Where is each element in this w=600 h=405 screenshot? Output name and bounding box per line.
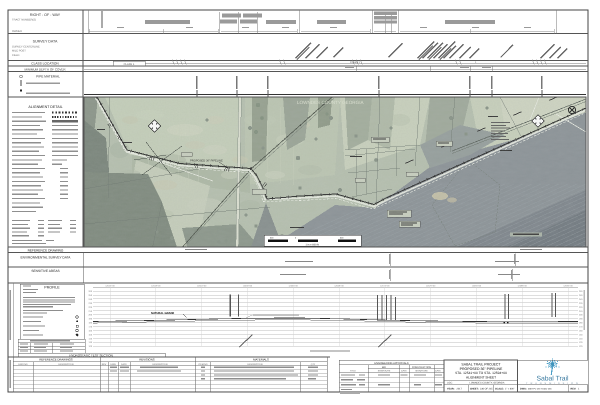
svg-text:DESCRIPTION: DESCRIPTION (59, 363, 74, 366)
svg-text:T R A N S M I S S I O N: T R A N S M I S S I O N (526, 382, 579, 385)
svg-text:0007-PL-DG-70181-236: 0007-PL-DG-70181-236 (528, 387, 552, 390)
svg-text:TITLE: TITLE (350, 370, 356, 373)
svg-text:REVISIONS: REVISIONS (139, 358, 154, 362)
svg-text:PIPE MATERIAL: PIPE MATERIAL (36, 75, 60, 79)
svg-text:RIGHT - OF - WAY: RIGHT - OF - WAY (30, 13, 61, 17)
svg-text:12578+00: 12578+00 (426, 284, 436, 287)
svg-text:DWN: DWN (110, 363, 116, 366)
svg-text:FIELD: FIELD (12, 54, 19, 57)
svg-text:REV:: REV: (571, 387, 577, 390)
svg-text:ALIGNMENT SHEET: ALIGNMENT SHEET (466, 375, 496, 379)
svg-text:MILE POST: MILE POST (12, 50, 26, 53)
svg-text:1" = 600': 1" = 600' (505, 387, 515, 390)
svg-text:TRACT NUMBER(S): TRACT NUMBER(S) (12, 19, 36, 22)
svg-text:MATERIALS: MATERIALS (253, 358, 269, 362)
svg-text:DATE: DATE (121, 363, 127, 366)
svg-text:REV: REV (102, 363, 107, 366)
svg-text:CLASS 1: CLASS 1 (124, 63, 135, 66)
svg-text:DWG:: DWG: (520, 387, 527, 390)
svg-text:12593+00: 12593+00 (563, 284, 573, 287)
svg-text:12563+00: 12563+00 (289, 284, 299, 287)
svg-text:NATURAL GRADE: NATURAL GRADE (151, 312, 174, 315)
svg-text:2017: 2017 (457, 387, 463, 390)
svg-text:DATE: DATE (401, 370, 407, 373)
svg-text:CLASS 1: CLASS 1 (350, 61, 361, 64)
svg-text:12543+00: 12543+00 (105, 284, 115, 287)
svg-text:236 OF 245: 236 OF 245 (480, 387, 493, 390)
svg-text:REFERENCE DRAWING: REFERENCE DRAWING (28, 248, 64, 252)
svg-text:DWG NO: DWG NO (18, 363, 28, 366)
svg-text:12583+00: 12583+00 (472, 284, 482, 287)
svg-text:ENVIRONMENTAL SURVEY DATA: ENVIRONMENTAL SURVEY DATA (21, 256, 72, 260)
svg-text:12568+00: 12568+00 (334, 284, 344, 287)
svg-text:REFERENCE DRAWINGS: REFERENCE DRAWINGS (39, 358, 72, 362)
svg-text:SURVEY CENTERLINE: SURVEY CENTERLINE (12, 46, 40, 49)
svg-text:DESCRIPTION: DESCRIPTION (248, 363, 263, 366)
svg-text:12548+00: 12548+00 (151, 284, 161, 287)
svg-text:ITEM NO: ITEM NO (198, 363, 207, 366)
svg-text:CLASS LOCATION: CLASS LOCATION (31, 62, 59, 66)
svg-text:DESCRIPTION: DESCRIPTION (153, 363, 168, 366)
svg-text:SABAL TRAIL PROJECT: SABAL TRAIL PROJECT (461, 362, 501, 366)
svg-text:YEAR:: YEAR: (447, 387, 455, 390)
svg-text:QTY: QTY (311, 363, 316, 366)
svg-text:LOWNDES COUNTY, GEORGIA: LOWNDES COUNTY, GEORGIA (469, 382, 504, 385)
svg-text:12553+00: 12553+00 (197, 284, 207, 287)
svg-text:MINIMUM DEPTH OF COVER: MINIMUM DEPTH OF COVER (25, 67, 67, 71)
svg-text:SIGNATURE: SIGNATURE (378, 370, 391, 373)
svg-text:ENGINEERING APPROVALS: ENGINEERING APPROVALS (374, 362, 409, 365)
svg-text:SURVEY DATA: SURVEY DATA (33, 40, 58, 44)
svg-text:ALIGNMENT DETAIL: ALIGNMENT DETAIL (28, 105, 62, 109)
svg-text:SENSITIVE AREAS: SENSITIVE AREAS (31, 269, 59, 273)
svg-text:PROFILE: PROFILE (44, 286, 60, 290)
svg-text:SIGNATURE: SIGNATURE (415, 370, 428, 373)
svg-text:SHEET:: SHEET: (470, 387, 479, 390)
svg-text:12573+00: 12573+00 (380, 284, 390, 287)
svg-text:OWNER: OWNER (12, 30, 22, 33)
svg-text:LOC:: LOC: (447, 382, 453, 385)
svg-text:PROPOSED 36" PIPELINE: PROPOSED 36" PIPELINE (460, 367, 503, 371)
svg-text:HYDROSTATIC TEST SECTION: HYDROSTATIC TEST SECTION (69, 353, 113, 357)
svg-text:SCALE:: SCALE: (495, 387, 504, 390)
svg-text:12588+00: 12588+00 (518, 284, 528, 287)
svg-text:1 in = 600 ft: 1 in = 600 ft (305, 244, 318, 247)
svg-text:12558+00: 12558+00 (243, 284, 253, 287)
svg-text:DATE: DATE (435, 370, 441, 373)
